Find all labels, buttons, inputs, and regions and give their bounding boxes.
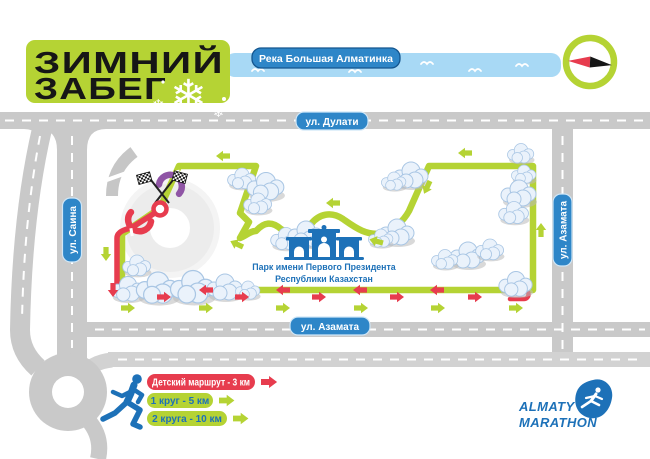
snowflake-icon: ❄ [152,97,165,114]
street-label-saina: ул. Саина [63,198,82,262]
cloud-icon [508,144,535,165]
cloud-icon [476,239,505,261]
park-label: Парк имени Первого Президента Республики… [252,262,395,284]
legend: Детский маршрут - 3 км 1 круг - 5 км 2 к… [103,374,277,427]
park-label-line2: Республики Казахстан [275,274,373,284]
legend-item-lap1: 1 круг - 5 км [147,393,234,408]
svg-text:ул. Азамата: ул. Азамата [301,322,360,333]
legend-runner-icon [103,374,142,427]
river-label: Река Большая Алматинка [252,48,400,68]
title-block: ЗИМНИЙ ЗАБЕГ ❄ ❄ ❄ [26,40,230,121]
snowflake-icon: ❄ [213,105,224,120]
logo-pick-icon [575,379,612,418]
compass-icon [565,37,615,87]
title-line2: ЗАБЕГ [34,71,167,106]
start-ring-marker [154,203,167,216]
road-left-slant [20,129,42,368]
logo-line2: MARATHON [519,415,597,430]
park-label-line1: Парк имени Первого Президента [252,262,395,272]
flare [87,129,106,150]
legend-item-lap2: 2 круга - 10 км [147,411,248,426]
cloud-icon [499,272,533,299]
street-label-azamata-bottom: ул. Азамата [290,317,370,335]
snow-dot [161,80,164,83]
logo-line1: ALMATY [518,399,576,414]
map-canvas: Река Большая Алматинка [0,0,650,459]
svg-text:ул. Саина: ул. Саина [68,206,79,254]
svg-text:ул. Азамата: ул. Азамата [558,200,569,259]
winter-run-map-poster: Река Большая Алматинка [0,0,650,459]
roundabout [29,353,107,459]
river: Река Большая Алматинка [225,48,561,77]
street-label-azamata-right: ул. Азамата [553,194,572,266]
svg-text:Детский маршрут - 3 км: Детский маршрут - 3 км [152,378,250,389]
logo-almaty-marathon: ALMATY MARATHON [518,379,612,430]
svg-text:2 круга - 10 км: 2 круга - 10 км [152,414,222,425]
street-label-dulaty: ул. Дулати [296,112,368,130]
svg-text:1 круг - 5 км: 1 круг - 5 км [151,396,210,407]
snow-dot [222,97,226,101]
snowflake-icon: ❄ [170,72,207,121]
legend-item-kids: Детский маршрут - 3 км [147,374,277,390]
river-label-text: Река Большая Алматинка [259,53,393,65]
svg-text:ул. Дулати: ул. Дулати [306,117,359,128]
